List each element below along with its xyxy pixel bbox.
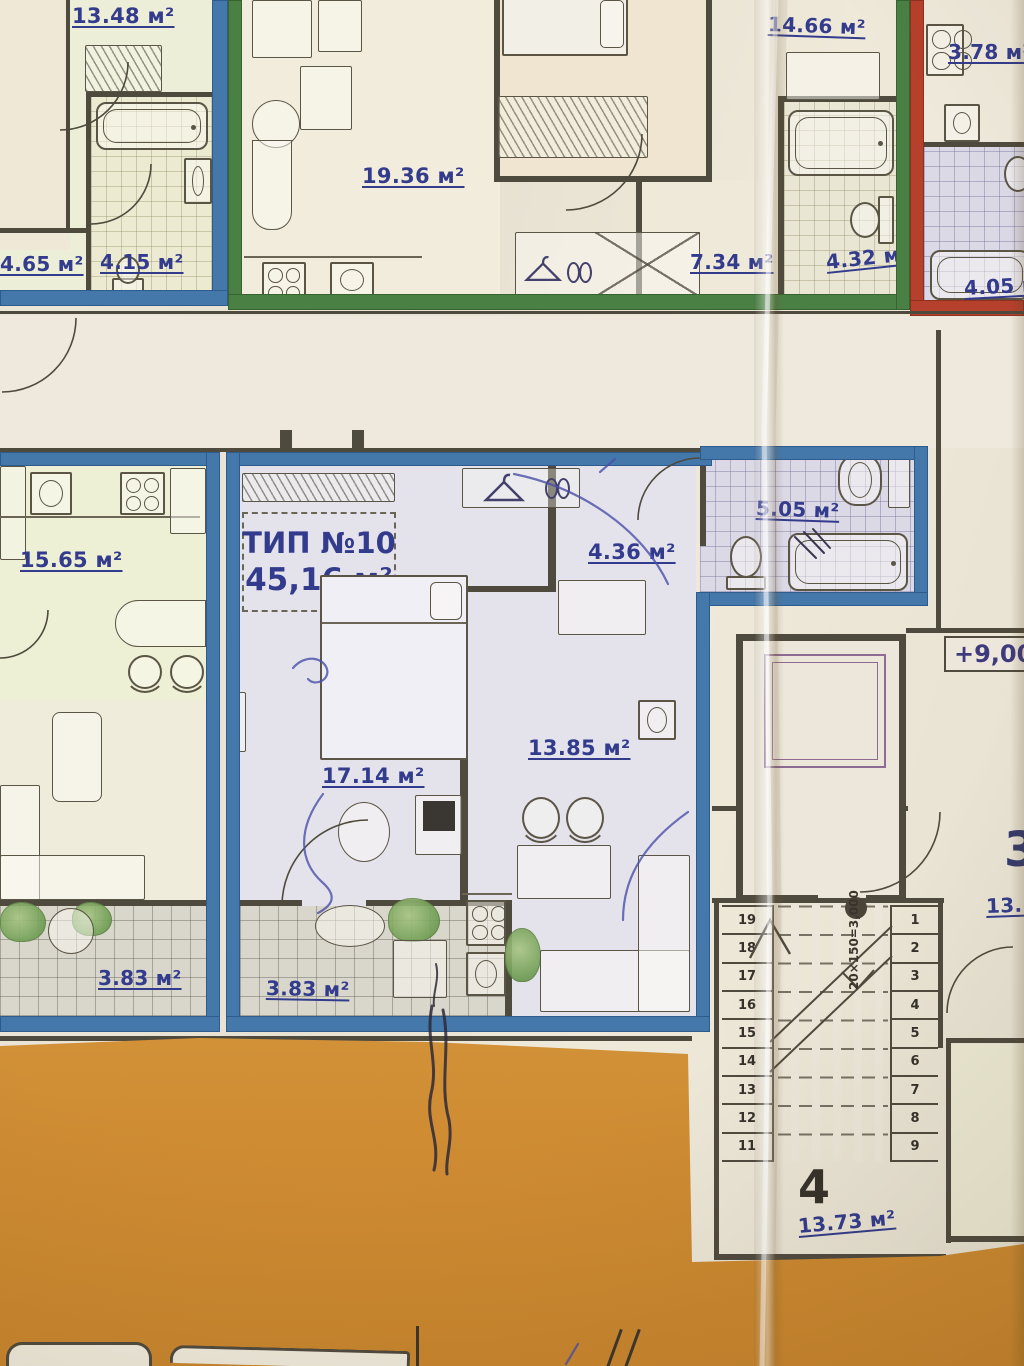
room-living bbox=[0, 0, 212, 292]
kitchen-counter-line bbox=[0, 516, 200, 518]
kitchen-counter-line bbox=[462, 893, 512, 895]
pen-streaks bbox=[795, 529, 830, 558]
wall bbox=[714, 903, 719, 1260]
room-kitchen bbox=[0, 466, 206, 700]
wall bbox=[240, 900, 302, 906]
door-arcs bbox=[0, 62, 1013, 1013]
corridor-floor bbox=[0, 316, 1024, 448]
area-label: 4.36 м² bbox=[588, 540, 676, 564]
shoes-icon bbox=[567, 262, 580, 283]
orange-band bbox=[0, 1030, 1024, 1366]
toilet-tank bbox=[878, 196, 894, 244]
unit-border-blue bbox=[696, 592, 710, 1032]
chair bbox=[566, 797, 604, 839]
wall bbox=[920, 142, 1024, 147]
closet-x bbox=[595, 232, 700, 297]
stair-step: 4 bbox=[892, 990, 938, 1018]
wall bbox=[714, 1254, 946, 1260]
unit-border-blue bbox=[0, 290, 228, 306]
unit-border-blue bbox=[914, 446, 928, 606]
shaft bbox=[0, 466, 26, 560]
bathroom-floor bbox=[784, 102, 898, 296]
wall-stub bbox=[280, 430, 292, 452]
unit-border-blue bbox=[226, 452, 240, 1032]
table bbox=[517, 845, 611, 899]
wall bbox=[366, 900, 512, 906]
unit-border-blue bbox=[0, 1016, 220, 1032]
stair-formula: 20×150=3,000 bbox=[847, 890, 861, 990]
wall bbox=[784, 96, 898, 102]
area-label: 3.78 м² bbox=[948, 40, 1024, 64]
wall bbox=[548, 466, 556, 592]
toilet-bowl bbox=[850, 202, 880, 238]
unit-border-blue bbox=[0, 452, 220, 466]
stair-step: 8 bbox=[892, 1103, 938, 1131]
pen-marks-blue bbox=[293, 459, 688, 1364]
oval-table bbox=[315, 905, 385, 947]
unit-border-blue bbox=[206, 452, 220, 1032]
stair-step: 5 bbox=[892, 1018, 938, 1046]
hanger-icon bbox=[482, 470, 526, 506]
bathroom-floor bbox=[700, 460, 914, 592]
wall bbox=[866, 806, 908, 811]
wall bbox=[66, 0, 70, 230]
wall bbox=[636, 182, 642, 296]
sink bbox=[184, 158, 212, 204]
area-label: 13.85 м² bbox=[528, 736, 631, 760]
column-marker bbox=[845, 897, 867, 919]
sink bbox=[838, 454, 882, 506]
wall bbox=[706, 0, 712, 182]
radiator bbox=[230, 692, 246, 752]
orange-band-group bbox=[0, 0, 1024, 1366]
shoes-icon bbox=[545, 478, 558, 499]
stool bbox=[170, 655, 204, 689]
type-title: ТИП №10 bbox=[242, 526, 396, 560]
plant bbox=[505, 928, 541, 982]
area-label: 15.65 м² bbox=[20, 548, 123, 572]
sofa bbox=[638, 855, 690, 1012]
area-label: 4.65 м² bbox=[0, 252, 84, 276]
entry-closet bbox=[462, 468, 580, 508]
area-label: 3.83 м² bbox=[266, 976, 350, 1001]
plant bbox=[388, 898, 440, 942]
lower-sheet-line bbox=[416, 1326, 419, 1366]
unit-border-blue bbox=[226, 1016, 710, 1032]
wall bbox=[86, 92, 91, 292]
unit-border-blue bbox=[700, 446, 928, 460]
pen-slash bbox=[604, 1329, 623, 1366]
unit-top-center: 19.36 м² 14.66 м² 7.34 м² 4.32 м² bbox=[0, 0, 1024, 1366]
area-label: 19.36 м² bbox=[362, 164, 465, 188]
stair-flight-number: 4 bbox=[798, 1160, 830, 1214]
hall-cabinet bbox=[558, 580, 646, 635]
round-table bbox=[252, 100, 300, 148]
common-area: +9,000 19 18 17 16 15 14 13 12 11 1 2 3 … bbox=[0, 0, 1024, 1366]
lower-sheet-shape bbox=[170, 1345, 410, 1366]
balcony-floor bbox=[240, 906, 505, 1016]
desk bbox=[415, 795, 462, 855]
sofa bbox=[540, 950, 690, 1012]
bar-counter bbox=[115, 600, 206, 647]
unit-top-right: 3.78 м² 4.05 м² bbox=[0, 0, 1024, 1366]
bathtub bbox=[96, 102, 208, 150]
wall bbox=[700, 460, 706, 546]
small-table bbox=[393, 940, 447, 998]
round-table bbox=[48, 908, 94, 954]
area-label: 4.32 м² bbox=[825, 241, 911, 274]
room-side bbox=[0, 0, 70, 250]
balcony-railing bbox=[498, 96, 648, 158]
wall bbox=[0, 228, 88, 233]
wardrobe bbox=[242, 473, 395, 502]
stair-step: 1 bbox=[892, 905, 938, 933]
unit-featured: ТИП №10 45,16 м² 17.14 м² 4.36 м² 5.05 м… bbox=[0, 0, 1024, 1366]
stair-flight-right: 1 2 3 4 5 6 7 8 9 bbox=[890, 905, 938, 1162]
bed bbox=[320, 575, 468, 760]
area-label: 17.14 м² bbox=[322, 764, 425, 788]
area-label: 13.48 м² bbox=[72, 4, 175, 28]
toilet-bowl bbox=[1004, 156, 1024, 192]
stair-break-lines bbox=[770, 926, 892, 1072]
wall bbox=[0, 900, 206, 906]
kitchen-sink bbox=[466, 952, 506, 996]
sofa bbox=[0, 855, 145, 900]
armchair bbox=[300, 66, 352, 130]
sofa bbox=[0, 785, 40, 903]
stove bbox=[262, 262, 306, 298]
wall-stub bbox=[352, 430, 364, 452]
photo-lighting bbox=[0, 0, 1024, 1366]
wall bbox=[494, 176, 712, 182]
stair-step: 7 bbox=[892, 1075, 938, 1103]
wall bbox=[946, 1038, 1024, 1043]
counter bbox=[252, 140, 292, 230]
hall-closet bbox=[786, 52, 880, 100]
area-label: 4.05 м² bbox=[963, 272, 1024, 300]
shelf bbox=[888, 456, 910, 508]
wall bbox=[460, 742, 468, 904]
wall bbox=[460, 586, 556, 592]
pillow bbox=[600, 0, 624, 48]
wall bbox=[946, 1236, 1024, 1242]
area-label: 13.50 bbox=[986, 892, 1024, 918]
stair-step: 9 bbox=[892, 1132, 938, 1162]
pen-slash bbox=[622, 1329, 641, 1366]
stove bbox=[926, 24, 964, 76]
unit-border-blue bbox=[226, 452, 712, 466]
unit-border-green bbox=[228, 0, 242, 310]
building-edge bbox=[0, 1036, 692, 1041]
area-label: 4.15 м² bbox=[100, 250, 184, 274]
balcony-floor bbox=[0, 906, 206, 1016]
bed-line bbox=[322, 622, 466, 624]
stair-step: 3 bbox=[892, 962, 938, 990]
plant bbox=[72, 902, 112, 936]
elevation-value: +9,000 bbox=[954, 640, 1024, 668]
room-living bbox=[0, 700, 206, 900]
shoes-icon bbox=[557, 478, 570, 499]
wall-sink bbox=[638, 700, 676, 740]
wall bbox=[86, 92, 212, 97]
type-label-box: ТИП №10 45,16 м² bbox=[242, 512, 396, 612]
tall-cabinet bbox=[170, 468, 206, 534]
unit-top-left: 13.48 м² 4.65 м² 4.15 м² bbox=[0, 0, 1024, 1366]
elevator-door-gap bbox=[818, 895, 866, 904]
chair bbox=[522, 797, 560, 839]
wall bbox=[494, 0, 500, 180]
unit-border-red bbox=[910, 300, 1024, 316]
floor-plan-photo: 13.48 м² 4.65 м² 4.15 м² bbox=[0, 0, 1024, 1366]
unit-border-blue bbox=[212, 0, 228, 306]
corridor bbox=[0, 0, 1024, 1366]
room-bottom-right bbox=[951, 1044, 1024, 1238]
stair-step: 6 bbox=[892, 1047, 938, 1075]
bathtub bbox=[930, 250, 1024, 300]
wall bbox=[946, 1038, 951, 1243]
area-label: 3.83 м² bbox=[98, 966, 182, 990]
coffee-table bbox=[52, 712, 102, 802]
bathroom-floor bbox=[91, 97, 212, 292]
wall bbox=[505, 902, 512, 1018]
stove bbox=[120, 472, 165, 515]
type-area: 45,16 м² bbox=[245, 562, 393, 598]
desk-chair bbox=[338, 802, 390, 862]
closet bbox=[515, 232, 700, 297]
room-bedroom bbox=[500, 0, 710, 180]
unit-border-green bbox=[228, 294, 910, 310]
stair-middle-dashes bbox=[778, 905, 888, 1162]
unit-border-green bbox=[896, 0, 910, 310]
toilet-bowl bbox=[116, 256, 140, 284]
elevation-box: +9,000 bbox=[944, 636, 1024, 672]
fold-crease bbox=[754, 0, 784, 1366]
wall bbox=[938, 903, 943, 1048]
stair-step: 2 bbox=[892, 933, 938, 961]
room-wc bbox=[924, 0, 1024, 146]
wall bbox=[936, 330, 941, 630]
wall bbox=[712, 898, 944, 903]
bathtub bbox=[788, 110, 894, 176]
toilet-tank bbox=[112, 278, 144, 294]
unit-floor bbox=[240, 466, 696, 1021]
pillow bbox=[430, 582, 462, 620]
hanger-icon bbox=[523, 252, 563, 286]
wall bbox=[0, 311, 1024, 314]
shoes-icon bbox=[579, 262, 592, 283]
table bbox=[318, 0, 362, 52]
kitchen-sink bbox=[30, 472, 72, 515]
unit-mid-left: 15.65 м² 3.83 м² bbox=[0, 0, 1024, 1366]
wardrobe bbox=[85, 45, 162, 92]
pen-scribble-dark bbox=[430, 964, 451, 1174]
table bbox=[252, 0, 312, 58]
stove bbox=[466, 900, 506, 946]
stool bbox=[128, 655, 162, 689]
elevator-car-inner bbox=[772, 662, 878, 760]
adjacent-unit-number: 3 bbox=[1004, 822, 1024, 878]
laptop bbox=[423, 801, 455, 831]
wall bbox=[906, 628, 1024, 633]
sink bbox=[944, 104, 980, 142]
area-label: 13.73 м² bbox=[797, 1206, 896, 1238]
unit-border-blue bbox=[700, 592, 928, 606]
bathtub bbox=[788, 533, 908, 591]
wall bbox=[460, 592, 468, 648]
wall bbox=[0, 448, 702, 452]
unit-border-red bbox=[910, 0, 924, 312]
kitchen-counter-line bbox=[244, 256, 422, 258]
bed bbox=[502, 0, 628, 56]
kitchen-sink bbox=[330, 262, 374, 298]
linework-overlay: 20×150=3,000 bbox=[0, 0, 1024, 1366]
bathroom-floor bbox=[924, 146, 1024, 302]
plant bbox=[0, 902, 46, 942]
room-living-kitchen bbox=[242, 0, 500, 296]
lower-sheet-shape bbox=[6, 1342, 152, 1366]
